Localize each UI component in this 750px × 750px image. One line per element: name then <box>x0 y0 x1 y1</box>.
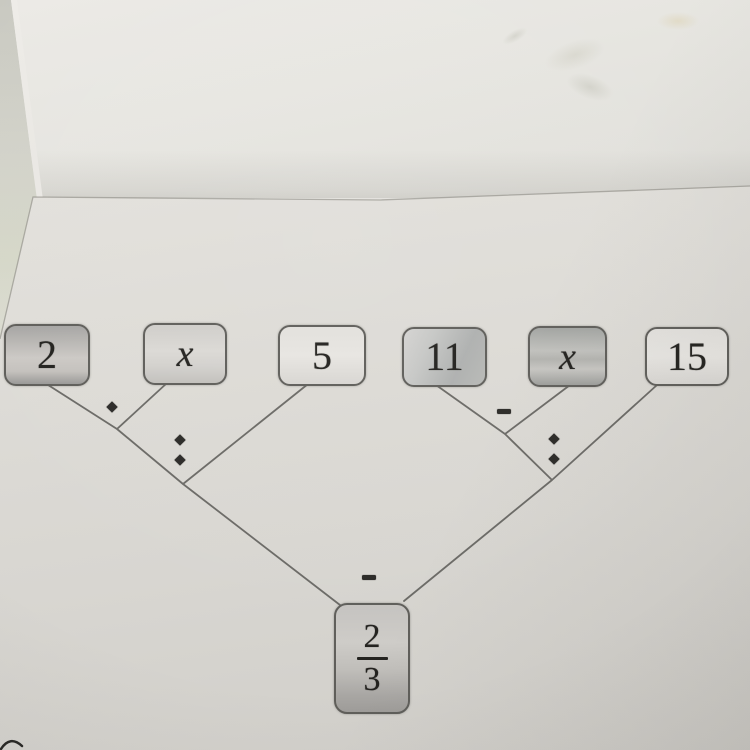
leaf-value: x <box>177 335 194 373</box>
subtract-minus-icon-bottom <box>362 575 376 580</box>
leaf-box-5: 5 <box>278 325 366 386</box>
colon-dot <box>174 434 185 445</box>
colon-dot <box>548 453 559 464</box>
divide-colon-icon-left <box>176 436 185 465</box>
connector-lines-right-subtree <box>404 385 657 601</box>
leaf-value: x <box>559 338 576 376</box>
worksheet-photo: 2 x 5 11 x 15 2 3 <box>0 0 750 750</box>
colon-dot <box>548 433 559 444</box>
connector-lines-left-subtree <box>45 383 340 605</box>
divide-colon-icon-right <box>550 435 559 464</box>
stray-pen-mark <box>1 741 22 749</box>
leaf-value: 5 <box>312 336 332 376</box>
leaf-value: 15 <box>667 337 707 377</box>
colon-dot <box>174 454 185 465</box>
result-denominator: 3 <box>364 663 381 697</box>
leaf-value: 2 <box>37 335 57 375</box>
fraction-bar <box>357 657 388 660</box>
page-edge-line <box>0 186 750 339</box>
leaf-box-2: 2 <box>4 324 90 386</box>
leaf-value: 11 <box>425 337 464 377</box>
leaf-box-x-right: x <box>528 326 607 387</box>
subtract-minus-icon-right <box>497 409 511 414</box>
leaf-box-x-left: x <box>143 323 227 385</box>
result-numerator: 2 <box>364 620 381 654</box>
leaf-box-11: 11 <box>402 327 487 387</box>
leaf-box-15: 15 <box>645 327 729 386</box>
result-box: 2 3 <box>334 603 410 714</box>
